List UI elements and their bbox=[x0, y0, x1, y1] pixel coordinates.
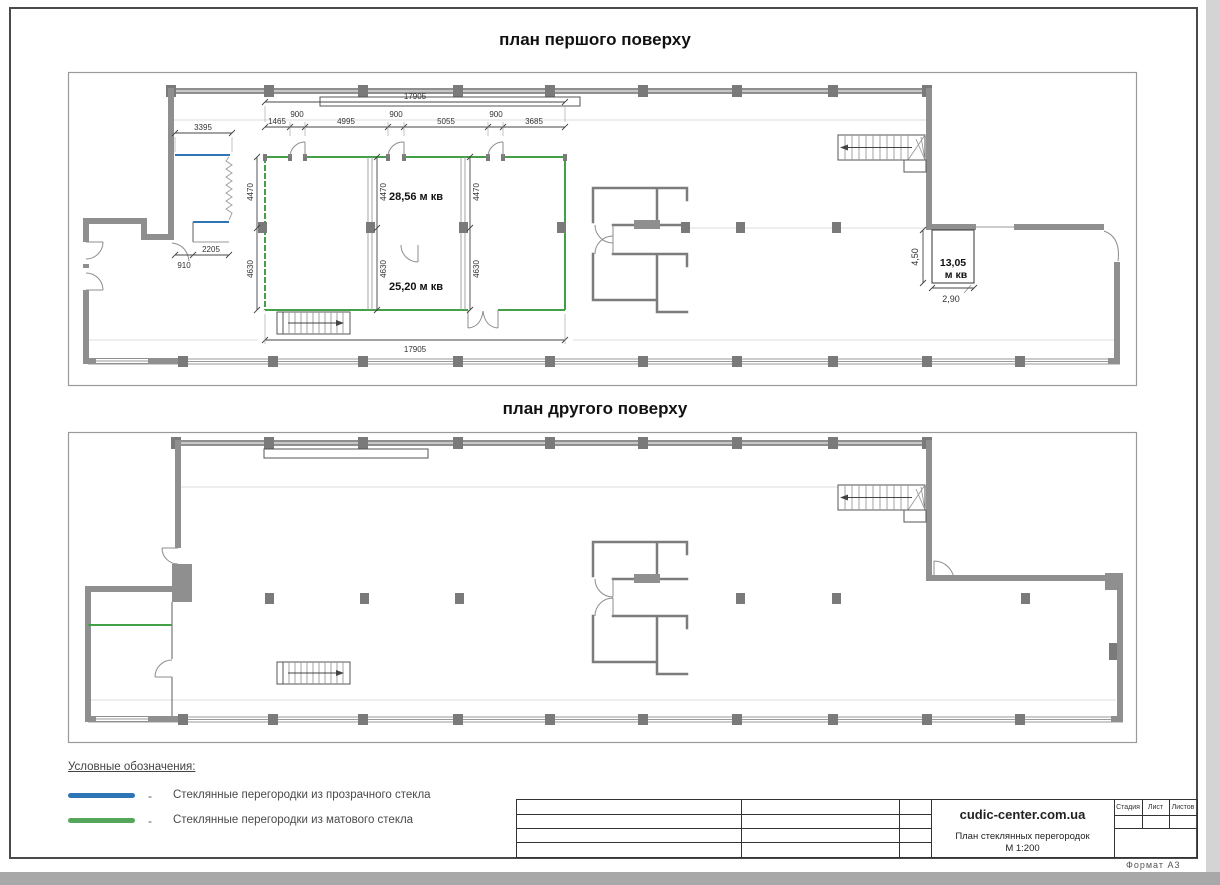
dim-4995: 4995 bbox=[337, 117, 355, 126]
dim-900: 900 bbox=[290, 110, 304, 119]
plan2-frame bbox=[69, 433, 1137, 743]
legend-swatch-clear bbox=[68, 793, 135, 798]
plan1-wc-block bbox=[593, 188, 687, 312]
column-header-sheet: Лист bbox=[1142, 800, 1169, 815]
dim-total-bottom: 17905 bbox=[404, 345, 427, 354]
door-arc-icon bbox=[155, 660, 172, 677]
plan2-wc-block bbox=[593, 542, 687, 674]
dim-900: 900 bbox=[489, 110, 503, 119]
double-door-icon bbox=[468, 310, 498, 328]
plan1-partition-doors bbox=[290, 142, 503, 328]
column-header-stage: Стадия bbox=[1114, 800, 1142, 815]
door-arc-icon bbox=[595, 598, 613, 616]
area-13-05-unit: м кв bbox=[945, 269, 968, 281]
plan2-columns bbox=[265, 593, 1030, 604]
dim-4-50: 4,50 bbox=[910, 248, 920, 266]
dim-910: 910 bbox=[177, 261, 191, 270]
legend-item-clear-glass: - Стеклянные перегородки из прозрачного … bbox=[68, 790, 568, 802]
plan1-title: план першого поверху bbox=[0, 30, 1190, 50]
dim-900: 900 bbox=[389, 110, 403, 119]
door-arc-icon bbox=[595, 579, 613, 597]
titleblock-row-line bbox=[1114, 828, 1197, 829]
plan1-exterior-walls bbox=[83, 85, 1120, 367]
area-28-56: 28,56 м кв bbox=[389, 191, 443, 203]
dim-4470: 4470 bbox=[246, 183, 255, 201]
dim-2205: 2205 bbox=[202, 245, 220, 254]
area-25-20: 25,20 м кв bbox=[389, 281, 443, 293]
titleblock-row-line bbox=[1114, 815, 1197, 816]
canopy-outline bbox=[264, 449, 428, 458]
plan2-doors bbox=[155, 548, 954, 677]
door-arc-icon bbox=[488, 142, 503, 157]
dim-total-top: 17905 bbox=[404, 92, 427, 101]
brand-name: cudic-center.com.ua bbox=[931, 800, 1114, 828]
legend-item-matte-glass: - Стеклянные перегородки из матового сте… bbox=[68, 815, 568, 827]
title-block: cudic-center.com.ua План стеклянных пере… bbox=[516, 799, 1198, 858]
door-arc-icon bbox=[86, 273, 103, 290]
plan1-staircase-upper-icon bbox=[838, 135, 926, 172]
legend-heading: Условные обозначения: bbox=[68, 761, 195, 773]
legend-separator: - bbox=[148, 789, 152, 803]
plan1-area-labels: 28,56 м кв 25,20 м кв bbox=[389, 191, 443, 293]
plan2-staircase-upper-icon bbox=[838, 485, 926, 522]
dim-4630: 4630 bbox=[472, 260, 481, 278]
dim-4630: 4630 bbox=[379, 260, 388, 278]
door-arc-icon bbox=[595, 225, 613, 243]
door-arc-icon bbox=[162, 548, 178, 564]
format-label: Формат А3 bbox=[1126, 860, 1180, 870]
plan1-drawing: 17905 1465 900 4995 900 5055 900 3685 33… bbox=[68, 72, 1137, 386]
plan1-staircase-lower-icon bbox=[277, 312, 350, 334]
dim-3395: 3395 bbox=[194, 123, 212, 132]
legend-separator: - bbox=[148, 814, 152, 828]
door-arc-icon bbox=[1104, 231, 1118, 261]
legend-swatch-matte bbox=[68, 818, 135, 823]
door-arc-icon bbox=[388, 142, 404, 157]
titleblock-row-line bbox=[517, 828, 931, 829]
door-arc-icon bbox=[172, 243, 189, 261]
door-arc-icon bbox=[401, 245, 418, 262]
legend-label-matte: Стеклянные перегородки из матового стекл… bbox=[173, 814, 413, 826]
titleblock-row-line bbox=[517, 842, 931, 843]
dim-2-90: 2,90 bbox=[942, 294, 960, 304]
titleblock-row-line bbox=[517, 814, 931, 815]
plan2-staircase-lower-icon bbox=[277, 662, 350, 684]
dim-3685: 3685 bbox=[525, 117, 543, 126]
door-arc-icon bbox=[86, 242, 103, 259]
canopy-outline bbox=[320, 97, 580, 106]
legend-label-clear: Стеклянные перегородки из прозрачного ст… bbox=[173, 789, 431, 801]
document-title-cell: План стеклянных перегородок М 1:200 bbox=[931, 828, 1114, 857]
door-arc-icon bbox=[595, 236, 613, 254]
plan2-drawing bbox=[68, 430, 1137, 744]
document-scale: М 1:200 bbox=[1005, 843, 1039, 855]
titleblock-col-line bbox=[741, 800, 742, 857]
titleblock-col-line bbox=[899, 800, 900, 857]
dim-4470: 4470 bbox=[379, 183, 388, 201]
plan2-title: план другого поверху bbox=[0, 399, 1190, 419]
window-bottom-strip bbox=[0, 872, 1220, 885]
dim-5055: 5055 bbox=[437, 117, 455, 126]
dim-4470: 4470 bbox=[472, 183, 481, 201]
document-title: План стеклянных перегородок bbox=[955, 831, 1089, 843]
zigzag-joint bbox=[226, 157, 232, 220]
dim-4630: 4630 bbox=[246, 260, 255, 278]
plan2-exterior-walls bbox=[85, 437, 1123, 725]
dim-1465: 1465 bbox=[268, 117, 286, 126]
column-header-sheets: Листов bbox=[1169, 800, 1197, 815]
area-13-05: 13,05 bbox=[940, 257, 966, 269]
window-right-strip bbox=[1206, 0, 1220, 872]
door-arc-icon bbox=[290, 142, 305, 157]
